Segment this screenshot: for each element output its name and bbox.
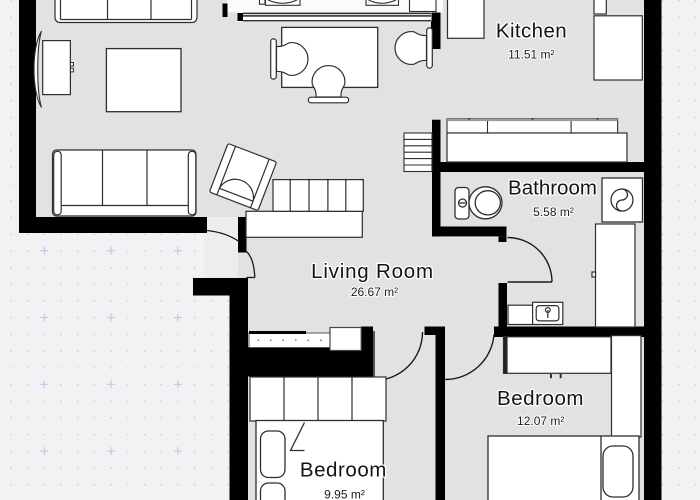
svg-text:Bedroom: Bedroom <box>300 459 387 482</box>
svg-text:Bedroom: Bedroom <box>497 387 584 410</box>
svg-text:Bathroom: Bathroom <box>508 177 597 200</box>
svg-text:Living Room: Living Room <box>311 260 434 283</box>
svg-text:9.95 m²: 9.95 m² <box>324 488 365 500</box>
svg-text:Kitchen: Kitchen <box>496 20 567 43</box>
svg-text:11.51 m²: 11.51 m² <box>508 48 554 62</box>
svg-text:12.07 m²: 12.07 m² <box>517 414 564 428</box>
svg-text:5.58 m²: 5.58 m² <box>533 205 574 219</box>
svg-text:26.67 m²: 26.67 m² <box>351 285 398 299</box>
